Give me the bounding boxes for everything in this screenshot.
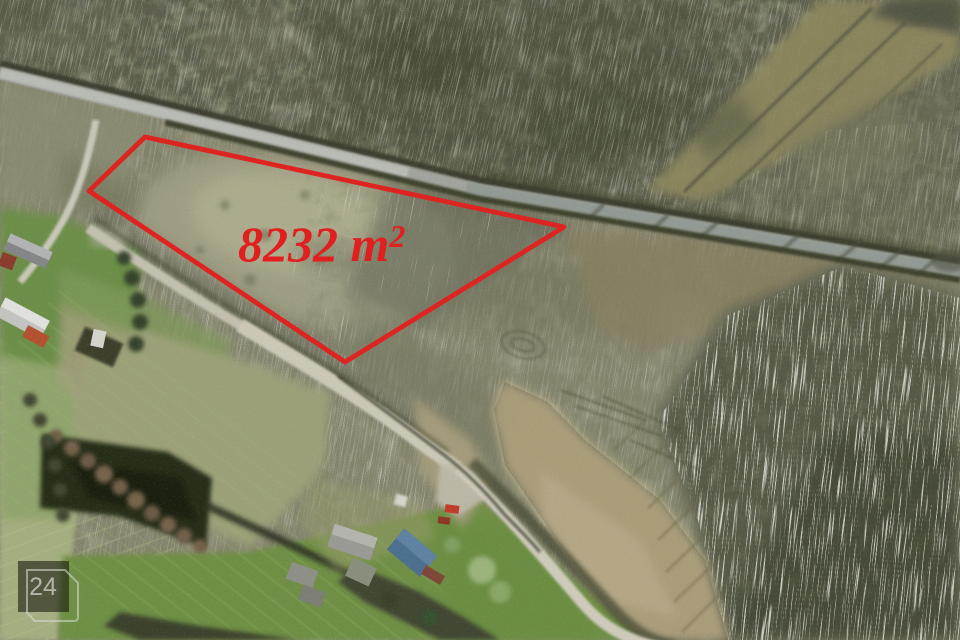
- svg-text:8232 m2: 8232 m2: [238, 216, 405, 272]
- svg-text:24: 24: [29, 573, 57, 601]
